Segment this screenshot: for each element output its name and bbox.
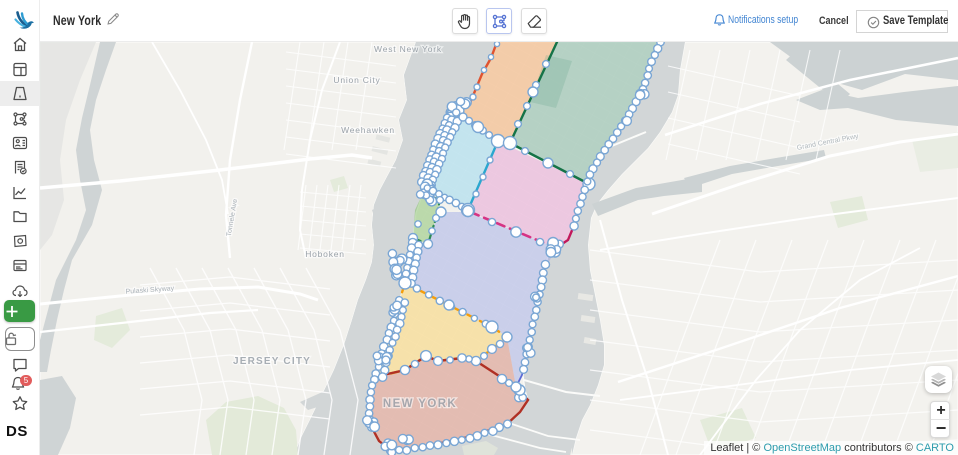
svg-text:Hoboken: Hoboken xyxy=(305,249,345,259)
svg-text:West New York: West New York xyxy=(374,44,442,54)
svg-text:Union City: Union City xyxy=(333,75,380,85)
svg-text:Weehawken: Weehawken xyxy=(341,125,395,135)
svg-text:NEW YORK: NEW YORK xyxy=(383,398,457,410)
svg-text:JERSEY CITY: JERSEY CITY xyxy=(233,356,311,367)
